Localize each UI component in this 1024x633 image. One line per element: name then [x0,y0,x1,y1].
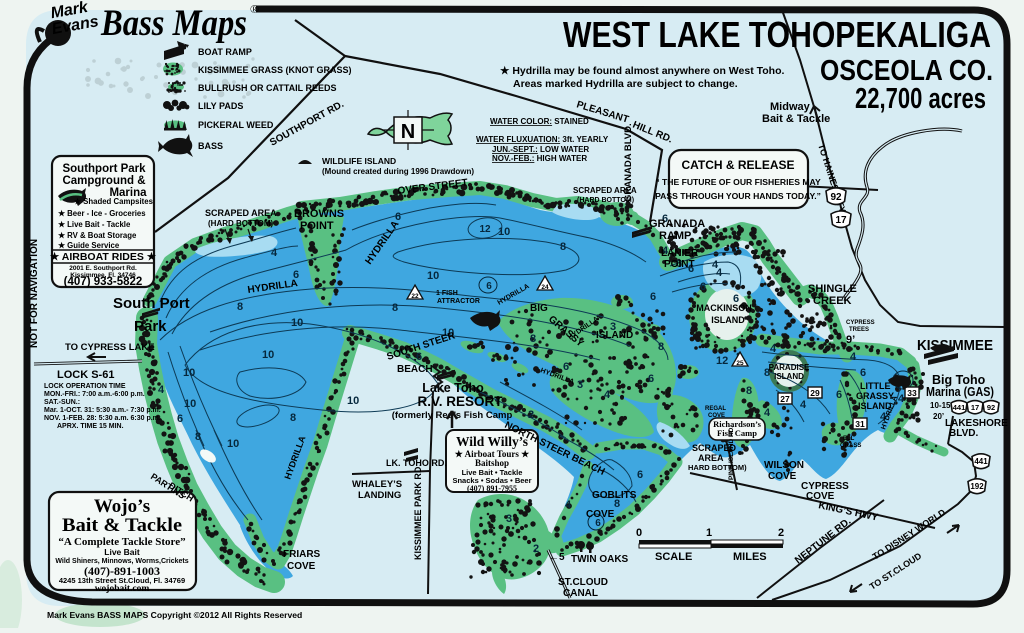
svg-text:←5: ←5 [549,552,565,563]
svg-text:WEST LAKE TOHOPEKALIGA: WEST LAKE TOHOPEKALIGA [563,14,991,55]
svg-text:441: 441 [953,403,966,412]
svg-text:8: 8 [392,302,398,314]
svg-text:4: 4 [712,259,719,271]
svg-text:6: 6 [563,361,569,373]
svg-text:17: 17 [835,215,847,226]
svg-text:6: 6 [836,389,842,401]
svg-text:GRASS: GRASS [840,443,861,449]
svg-text:COVE: COVE [586,509,615,520]
svg-text:PINE ISLAND RD.: PINE ISLAND RD. [728,426,735,480]
svg-text:6: 6 [395,211,401,223]
svg-text:N: N [401,121,415,143]
svg-text:2: 2 [528,409,534,421]
svg-text:PASS THROUGH YOUR HANDS TODAY.: PASS THROUGH YOUR HANDS TODAY.” [655,191,821,201]
svg-text:★ Hydrilla may be found almost: ★ Hydrilla may be found almost anywhere … [500,65,784,77]
svg-text:KISSIMMEE: KISSIMMEE [917,338,993,354]
svg-text:Southport Park: Southport Park [62,163,146,175]
svg-text:R.V. RESORT: R.V. RESORT [417,394,503,409]
svg-text:ISLAND: ISLAND [711,315,745,325]
svg-text:8: 8 [290,412,296,424]
svg-text:GRANADA: GRANADA [649,218,705,230]
svg-text:PARADISE: PARADISE [769,363,810,372]
svg-text:RAMP: RAMP [659,230,691,242]
svg-text:192: 192 [970,482,984,491]
svg-text:10-15: 10-15 [930,401,951,410]
svg-text:APRX. TIME 15 MIN.: APRX. TIME 15 MIN. [57,423,124,430]
svg-text:Midway: Midway [770,101,811,113]
svg-text:6: 6 [486,281,492,292]
svg-text:92: 92 [830,192,842,203]
svg-text:®: ® [250,2,259,16]
svg-text:92: 92 [987,403,995,412]
svg-text:KISSIMMEE PARK RD.: KISSIMMEE PARK RD. [413,464,423,560]
svg-text:CANAL: CANAL [563,588,598,599]
svg-text:4: 4 [565,499,572,511]
svg-text:“ THE FUTURE OF OUR FISHERIES: “ THE FUTURE OF OUR FISHERIES MAY [655,177,821,187]
svg-text:10: 10 [262,349,274,361]
svg-text:LITTLE: LITTLE [860,381,891,391]
svg-text:South Port: South Port [113,295,190,312]
svg-text:8: 8 [746,385,752,397]
svg-text:Fish Camp: Fish Camp [717,428,757,438]
svg-text:Bass Maps: Bass Maps [100,3,247,44]
svg-text:29: 29 [810,388,820,398]
svg-text:★ Shaded Campsites: ★ Shaded Campsites [74,197,154,206]
svg-text:TWIN OAKS: TWIN OAKS [571,554,629,565]
svg-text:LANIER: LANIER [661,248,699,259]
svg-text:2: 2 [778,527,784,539]
svg-text:Bait & Tackle: Bait & Tackle [762,113,830,125]
svg-text:1 FISH: 1 FISH [436,290,458,297]
svg-text:8: 8 [560,241,566,253]
svg-text:TO CYPRESS LAKE: TO CYPRESS LAKE [65,342,155,353]
svg-text:CREEK: CREEK [813,295,852,307]
svg-text:Mark Evans BASS MAPS Copyright: Mark Evans BASS MAPS Copyright ©2012 All… [47,610,302,620]
svg-text:SAT.-SUN.:: SAT.-SUN.: [44,399,80,406]
svg-text:COVE: COVE [287,561,316,572]
svg-text:GRASSY: GRASSY [856,391,894,401]
svg-text:25: 25 [736,360,744,367]
svg-text:ISLAND: ISLAND [596,330,633,341]
svg-text:MILES: MILES [733,551,767,563]
svg-text:(407) 933-5822: (407) 933-5822 [64,276,143,288]
svg-text:Wojo’s: Wojo’s [94,496,150,517]
svg-text:10: 10 [227,438,239,450]
svg-text:Lake Toho: Lake Toho [422,381,484,395]
svg-text:BEACH: BEACH [397,364,433,375]
svg-text:6: 6 [650,291,656,303]
svg-text:LILY PADS: LILY PADS [198,101,243,111]
svg-text:KISSIMMEE GRASS (KNOT GRASS): KISSIMMEE GRASS (KNOT GRASS) [198,65,352,75]
svg-text:33: 33 [907,388,917,398]
svg-text:JUN.-SEPT.: LOW WATER: JUN.-SEPT.: LOW WATER [492,145,589,154]
svg-text:SHINGLE: SHINGLE [808,283,857,295]
svg-text:BASS: BASS [198,141,223,151]
svg-text:27: 27 [780,394,790,404]
svg-text:4: 4 [770,343,777,355]
svg-text:6: 6 [648,373,654,385]
svg-text:(Mound created during 1996 Dra: (Mound created during 1996 Drawdown) [322,167,474,176]
svg-text:4: 4 [898,393,905,405]
svg-text:BOAT RAMP: BOAT RAMP [198,47,252,57]
svg-text:(HARD BOTTOM): (HARD BOTTOM) [577,197,634,204]
svg-text:COVE: COVE [708,413,725,419]
svg-text:31: 31 [855,419,865,429]
svg-text:4: 4 [604,389,611,401]
svg-text:★ Beer - Ice - Groceries: ★ Beer - Ice - Groceries [58,209,146,218]
svg-text:6: 6 [700,281,706,293]
svg-text:12: 12 [716,355,728,367]
svg-text:8: 8 [237,301,243,313]
svg-text:8: 8 [658,341,664,353]
svg-text:WATER FLUXUATION: 3ft. YEARLY: WATER FLUXUATION: 3ft. YEARLY [476,135,609,144]
svg-text:POINT: POINT [664,259,695,270]
svg-text:10: 10 [184,398,196,410]
svg-text:6: 6 [637,469,643,481]
svg-text:WILDLIFE ISLAND: WILDLIFE ISLAND [322,156,396,166]
svg-text:12: 12 [479,224,491,235]
svg-text:Campground &: Campground & [62,175,145,187]
svg-text:10: 10 [498,226,510,238]
svg-text:0: 0 [636,527,642,539]
svg-text:MACKINSON: MACKINSON [696,303,752,313]
svg-text:CYPRESS: CYPRESS [846,320,875,326]
svg-text:GOBLITS: GOBLITS [592,490,637,501]
svg-text:BROWNS: BROWNS [294,208,344,220]
svg-text:Live Bait: Live Bait [104,547,140,557]
svg-text:NOT FOR NAVIGATION: NOT FOR NAVIGATION [29,239,40,348]
svg-text:ELL: ELL [843,436,855,442]
svg-text:ISLAND: ISLAND [774,372,804,381]
svg-text:CATCH & RELEASE: CATCH & RELEASE [681,158,794,172]
svg-text:BULLRUSH OR CATTAIL REEDS: BULLRUSH OR CATTAIL REEDS [198,83,337,93]
svg-text:FRIARS: FRIARS [283,549,321,560]
svg-text:Park: Park [134,318,167,335]
svg-text:★ RV & Boat Storage: ★ RV & Boat Storage [58,231,137,240]
svg-text:TREES: TREES [849,327,869,333]
svg-text:10: 10 [291,317,303,329]
svg-text:4: 4 [158,384,165,396]
svg-text:8: 8 [530,333,536,345]
svg-text:WILSON: WILSON [764,460,804,471]
svg-text:4: 4 [271,247,278,259]
svg-text:(407) 891-7955: (407) 891-7955 [467,484,517,493]
svg-text:★ AIRBOAT RIDES ★: ★ AIRBOAT RIDES ★ [50,251,157,263]
svg-text:NOV. 1-FEB. 28: 5:30 a.m. 6:30: NOV. 1-FEB. 28: 5:30 a.m. 6:30 p.m. [44,415,161,422]
svg-text:AREA: AREA [698,453,724,463]
svg-text:20’: 20’ [933,412,944,421]
svg-text:BLVD.: BLVD. [949,428,978,439]
svg-text:10: 10 [347,395,359,407]
svg-text:6: 6 [860,367,866,379]
svg-text:ST.CLOUD: ST.CLOUD [558,577,608,588]
svg-text:Marina (GAS): Marina (GAS) [926,385,994,399]
svg-text:2: 2 [533,543,539,555]
svg-text:COVE: COVE [768,471,797,482]
svg-text:★ Live Bait - Tackle: ★ Live Bait - Tackle [58,220,131,229]
svg-text:2001 E. Southport Rd.: 2001 E. Southport Rd. [69,265,137,272]
svg-text:LOCK OPERATION TIME: LOCK OPERATION TIME [44,383,126,390]
svg-text:Baitshop: Baitshop [475,458,509,468]
svg-text:BIG: BIG [530,303,548,314]
svg-text:3: 3 [577,379,583,391]
svg-text:10: 10 [427,270,439,282]
svg-text:LOCK S-61: LOCK S-61 [57,369,114,381]
svg-text:4: 4 [800,399,807,411]
svg-text:22: 22 [411,293,419,300]
svg-text:SCRAPED AREA: SCRAPED AREA [205,208,277,218]
svg-text:1: 1 [706,527,712,539]
svg-text:SCALE: SCALE [655,551,692,563]
svg-text:9’: 9’ [846,334,855,346]
svg-text:Bait & Tackle: Bait & Tackle [62,515,182,536]
svg-text:ATTRACTOR: ATTRACTOR [437,298,480,305]
svg-text:(HARD BOTTOM): (HARD BOTTOM) [208,219,274,228]
svg-text:WHALEY’S: WHALEY’S [352,479,402,490]
svg-text:441: 441 [974,457,988,466]
svg-text:★ Guide Service: ★ Guide Service [58,241,120,250]
svg-text:wojobait.com: wojobait.com [95,584,150,594]
svg-text:REGAL: REGAL [705,406,726,412]
svg-text:PICKERAL WEED: PICKERAL WEED [198,120,274,130]
svg-text:WATER COLOR: STAINED: WATER COLOR: STAINED [490,117,589,126]
svg-text:Areas marked Hydrilla are subj: Areas marked Hydrilla are subject to cha… [513,78,738,90]
svg-text:6: 6 [177,413,183,425]
svg-text:SCRAPED AREA: SCRAPED AREA [573,186,637,195]
svg-text:MON.-FRI.: 7:00 a.m.-6:00 p.m.: MON.-FRI.: 7:00 a.m.-6:00 p.m. [44,391,145,398]
svg-text:NOV.-FEB.: HIGH WATER: NOV.-FEB.: HIGH WATER [492,154,587,163]
svg-text:22,700 acres: 22,700 acres [855,83,986,115]
svg-text:24: 24 [541,284,549,291]
svg-text:8: 8 [195,431,201,443]
svg-text:4: 4 [764,407,771,419]
svg-text:3: 3 [506,513,512,525]
svg-text:Mar. 1-OCT. 31: 5:30 a.m.- 7:3: Mar. 1-OCT. 31: 5:30 a.m.- 7:30 p.m. [44,407,161,414]
svg-text:4: 4 [850,351,857,363]
svg-text:17: 17 [971,403,979,412]
svg-text:POINT: POINT [300,220,334,232]
svg-text:10: 10 [183,367,195,379]
svg-text:LANDING: LANDING [358,490,401,501]
svg-text:HARD BOTTOM): HARD BOTTOM) [688,463,747,472]
